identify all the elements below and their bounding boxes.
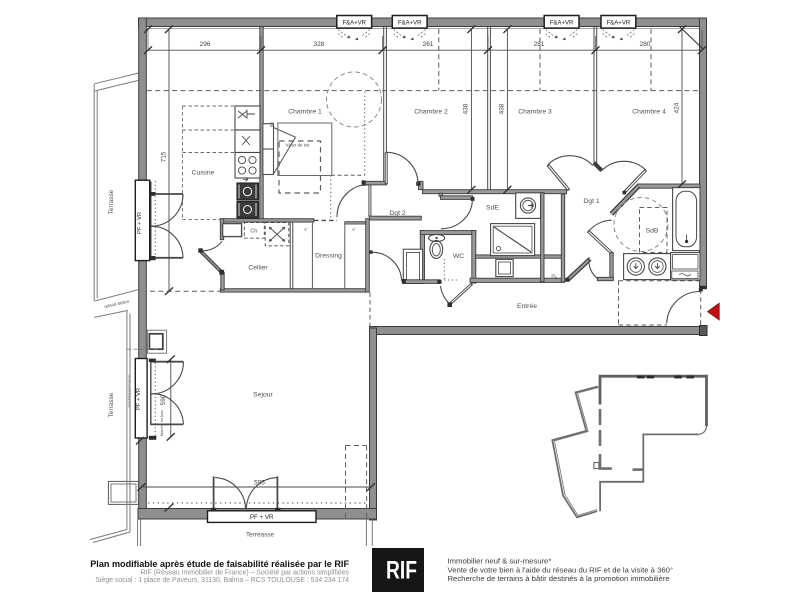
svg-text:Cellier: Cellier: [248, 265, 268, 272]
svg-text:RIF: RIF: [386, 557, 417, 585]
svg-text:Siège social : 1 place de Pave: Siège social : 1 place de Paveurs, 31130…: [95, 577, 349, 584]
svg-text:F&A+VR: F&A+VR: [607, 20, 631, 26]
svg-text:280: 280: [640, 41, 651, 48]
svg-text:Entrée: Entrée: [517, 303, 537, 310]
svg-text:SdB: SdB: [646, 228, 659, 235]
svg-text:Recherche de terrains à bâtir: Recherche de terrains à bâtir destinés à…: [448, 574, 670, 583]
svg-text:Chambre 2: Chambre 2: [414, 109, 448, 116]
svg-text:F&A+VR: F&A+VR: [342, 20, 366, 26]
svg-text:F&A+VR: F&A+VR: [398, 20, 422, 26]
svg-text:Vélux de toit: Vélux de toit: [285, 143, 310, 148]
svg-text:Marché en bois: Marché en bois: [160, 410, 164, 436]
svg-text:PF + VR: PF + VR: [136, 388, 142, 410]
svg-text:ε': ε': [304, 227, 307, 233]
svg-text:Ch: Ch: [250, 229, 257, 235]
svg-text:328: 328: [314, 41, 325, 48]
svg-text:261: 261: [423, 41, 434, 48]
svg-text:Terrasse: Terrasse: [108, 392, 115, 417]
svg-text:Terrasse: Terrasse: [108, 189, 115, 214]
svg-text:281: 281: [534, 41, 545, 48]
svg-text:Immobilier neuf & sur-mesure*: Immobilier neuf & sur-mesure*: [448, 557, 552, 566]
svg-text:595: 595: [254, 480, 265, 487]
svg-text:relevé béton: relevé béton: [104, 299, 130, 310]
svg-text:296: 296: [200, 41, 211, 48]
svg-text:Dgt 2: Dgt 2: [389, 210, 405, 217]
svg-text:Vente de votre bien à l'aide d: Vente de votre bien à l'aide du réseau d…: [448, 565, 674, 574]
svg-text:Terreasse: Terreasse: [246, 532, 275, 539]
svg-text:590: 590: [160, 394, 167, 405]
svg-text:Plan modifiable après étude de: Plan modifiable après étude de faisabili…: [90, 559, 349, 569]
svg-text:WC: WC: [453, 253, 464, 260]
svg-text:438: 438: [463, 103, 470, 114]
svg-text:SdE: SdE: [486, 205, 499, 212]
svg-text:438: 438: [499, 103, 506, 114]
svg-text:715: 715: [161, 151, 168, 162]
svg-text:PF + VR: PF + VR: [137, 212, 143, 234]
svg-text:Dgt 1: Dgt 1: [583, 198, 599, 205]
svg-text:PF + VR: PF + VR: [250, 514, 274, 521]
svg-text:Sejour: Sejour: [253, 392, 273, 399]
svg-text:F&A+VR: F&A+VR: [550, 20, 574, 26]
svg-text:Chambre 3: Chambre 3: [518, 109, 552, 116]
svg-text:PL: PL: [551, 274, 557, 279]
svg-text:RIF (Réseau Immobilier de Fran: RIF (Réseau Immobilier de France) – Soci…: [141, 570, 350, 577]
svg-text:Chambre 4: Chambre 4: [632, 109, 666, 116]
svg-text:424: 424: [674, 102, 681, 113]
svg-text:ε': ε': [352, 227, 355, 233]
svg-text:Cuisine: Cuisine: [192, 170, 215, 177]
svg-text:Chambre 1: Chambre 1: [288, 109, 322, 116]
svg-text:Dressing: Dressing: [315, 253, 342, 260]
svg-text:60: 60: [269, 122, 274, 127]
